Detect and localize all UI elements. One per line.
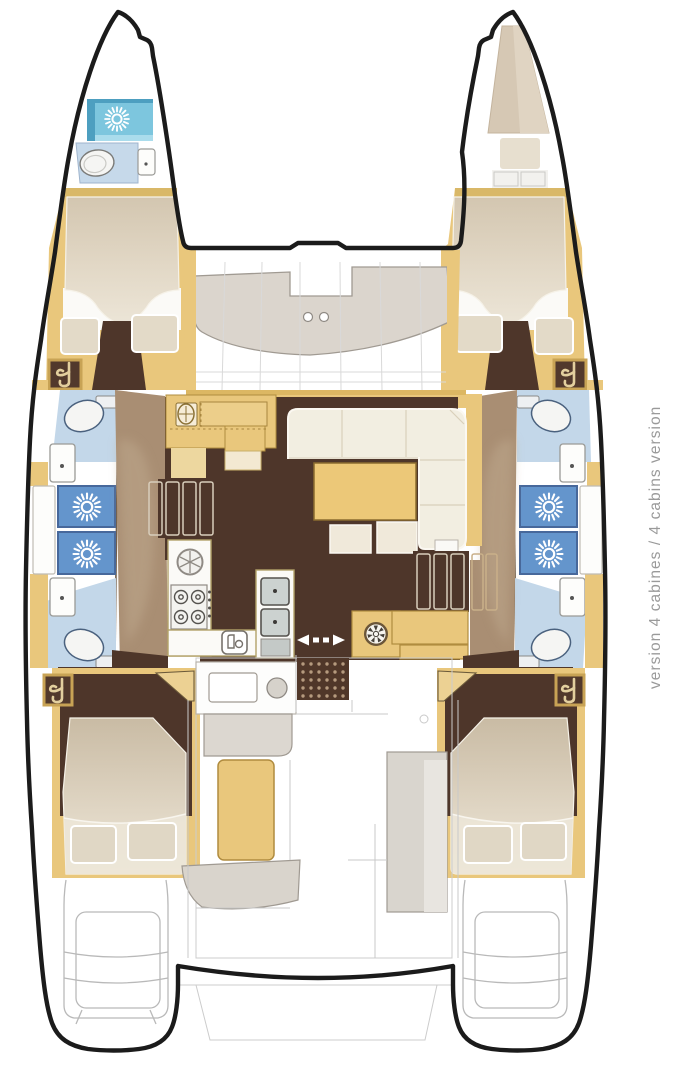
svg-text:version 4 cabines / 4 cabins v: version 4 cabines / 4 cabins version <box>647 406 664 689</box>
